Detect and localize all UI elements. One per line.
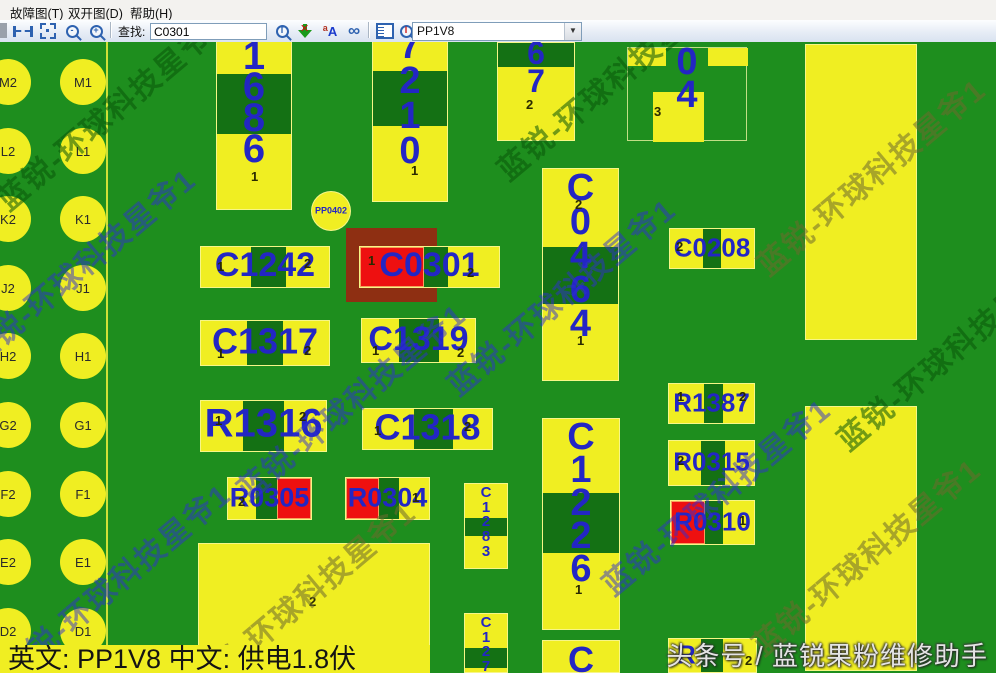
- pin-number: 2: [464, 419, 471, 434]
- pcb-board-canvas[interactable]: M2M1L2L1K2K1J2J1H2H1G2G1F2F1E2E1D2D11686…: [0, 42, 996, 673]
- separator: [110, 22, 112, 38]
- component-R0310[interactable]: R03101: [670, 500, 755, 545]
- fit-screen-button[interactable]: [38, 22, 58, 40]
- component-C0208[interactable]: C02082: [669, 228, 755, 269]
- component-C_partial[interactable]: C: [542, 640, 620, 673]
- component-C1283[interactable]: C1283: [464, 483, 508, 569]
- pin-number: 1: [677, 389, 684, 404]
- bga-pad-H2[interactable]: H2: [0, 333, 31, 379]
- bga-pad-G1[interactable]: G1: [60, 402, 106, 448]
- pin-number: 3: [654, 104, 661, 119]
- zoom-out-button[interactable]: -: [62, 22, 82, 40]
- component-label: C0208: [674, 232, 751, 263]
- pin-number: 1: [575, 582, 582, 597]
- fit-width-icon: [13, 26, 33, 37]
- component-PP0402[interactable]: PP0402: [311, 191, 351, 231]
- pin-number: 1: [215, 413, 222, 428]
- pin-number: 2: [575, 197, 582, 212]
- find-text-button[interactable]: T: [272, 22, 292, 40]
- component-C127[interactable]: C127: [464, 613, 508, 673]
- inspect-net-icon: I: [400, 25, 413, 38]
- pin-number: 2: [304, 343, 311, 358]
- bga-pad-G2[interactable]: G2: [0, 402, 31, 448]
- bga-pad-E1[interactable]: E1: [60, 539, 106, 585]
- component-04[interactable]: 043: [627, 47, 747, 141]
- component-label: C1226: [543, 421, 619, 586]
- component-1686[interactable]: 16861: [216, 42, 292, 210]
- component-C1242[interactable]: C124212: [200, 246, 330, 288]
- net-trace-line: [106, 42, 108, 673]
- pin-number: 2: [309, 594, 316, 609]
- pin-number: 1: [374, 423, 381, 438]
- watermark-credit: 头条号 / 蓝锐果粉维修助手: [666, 636, 988, 673]
- pcb-viewer-window: 故障图(T) 双开图(D) 帮助(H) - + 查找: T ✕ aA ∞ I P…: [0, 0, 996, 673]
- component-label: 04: [658, 46, 716, 112]
- component-R1387[interactable]: R138712: [668, 383, 755, 424]
- bga-pad-F1[interactable]: F1: [60, 471, 106, 517]
- zoom-in-button[interactable]: +: [86, 22, 106, 40]
- bga-pad-F2[interactable]: F2: [0, 471, 31, 517]
- component-R0315[interactable]: R03152: [668, 440, 755, 486]
- component-C1226[interactable]: C12261: [542, 418, 620, 630]
- bga-pad-J2[interactable]: J2: [0, 265, 31, 311]
- pin-number: 1: [411, 163, 418, 178]
- pin-number: 2: [467, 265, 474, 280]
- component-C1319[interactable]: C131912: [361, 318, 476, 363]
- search-input[interactable]: [150, 23, 267, 40]
- bga-pad-L1[interactable]: L1: [60, 128, 106, 174]
- menu-bar: 故障图(T) 双开图(D) 帮助(H): [0, 0, 996, 21]
- bga-pad-M1[interactable]: M1: [60, 59, 106, 105]
- find-text-icon: T: [276, 25, 289, 38]
- pin-number: 2: [457, 345, 464, 360]
- toolbar: - + 查找: T ✕ aA ∞ I PP1V8 ▼: [0, 20, 996, 43]
- component-label: 7210: [373, 42, 447, 169]
- pin-number: 2: [299, 409, 306, 424]
- component-label: C1317: [212, 320, 318, 362]
- component-label: 67: [498, 42, 574, 95]
- component-R0304[interactable]: R03041: [345, 477, 430, 520]
- pin-number: 1: [577, 333, 584, 348]
- component-label: 1686: [217, 42, 291, 165]
- net-select-value: PP1V8: [417, 24, 454, 38]
- bga-pad-K2[interactable]: K2: [0, 196, 31, 242]
- split-view-icon: [376, 23, 394, 39]
- component-C0301[interactable]: C030112: [359, 246, 500, 288]
- pin-number: 2: [238, 494, 245, 509]
- jump-down-button[interactable]: ✕: [295, 22, 315, 40]
- component-strip_bottom[interactable]: [805, 406, 917, 671]
- component-label: C127: [465, 616, 507, 673]
- component-C0464[interactable]: C046421: [542, 168, 619, 381]
- bga-pad-M2[interactable]: M2: [0, 59, 31, 105]
- component-R1316[interactable]: R131612: [200, 400, 327, 452]
- net-select[interactable]: PP1V8 ▼: [412, 22, 582, 41]
- component-C1317[interactable]: C131712: [200, 320, 330, 366]
- pin-number: 1: [217, 259, 224, 274]
- component-label: R0315: [673, 446, 750, 477]
- bga-pad-L2[interactable]: L2: [0, 128, 31, 174]
- component-label: PP0402: [315, 206, 347, 216]
- pin-number: 1: [217, 346, 224, 361]
- pin-number: 1: [739, 513, 746, 528]
- pin-number: 2: [526, 97, 533, 112]
- component-label: C1283: [465, 486, 507, 560]
- watermark-text: 蓝锐-环球科技星爷1: [0, 42, 234, 219]
- zoom-out-icon: -: [66, 25, 79, 38]
- component-7210[interactable]: 72101: [372, 42, 448, 202]
- pin-number: 2: [739, 389, 746, 404]
- pin-number: 1: [368, 253, 375, 268]
- component-strip_top[interactable]: [805, 44, 917, 340]
- pin-number: 1: [251, 169, 258, 184]
- pin-number: 2: [677, 453, 684, 468]
- bga-pad-H1[interactable]: H1: [60, 333, 106, 379]
- bga-pad-E2[interactable]: E2: [0, 539, 31, 585]
- pin-number: 2: [304, 256, 311, 271]
- component-label: C0301: [379, 246, 479, 285]
- chevron-down-icon: ▼: [564, 23, 581, 40]
- separator: [368, 22, 370, 38]
- component-67[interactable]: 672: [497, 42, 575, 141]
- match-case-button[interactable]: aA: [320, 22, 340, 40]
- bga-pad-J1[interactable]: J1: [60, 265, 106, 311]
- search-label: 查找:: [118, 22, 145, 40]
- net-description-bar: 英文: PP1V8 中文: 供电1.8伏: [0, 645, 430, 673]
- component-label: C: [543, 643, 619, 673]
- bga-pad-K1[interactable]: K1: [60, 196, 106, 242]
- pin-number: 1: [412, 490, 419, 505]
- component-C1318[interactable]: C131812: [362, 408, 493, 450]
- jump-down-icon: ✕: [297, 23, 313, 39]
- pin-number: 2: [676, 239, 683, 254]
- fit-width-button[interactable]: [13, 22, 33, 40]
- pin-number: 1: [372, 343, 379, 358]
- zoom-in-icon: +: [90, 25, 103, 38]
- component-R0305[interactable]: R03052: [227, 477, 312, 520]
- loop-icon: ∞: [348, 26, 360, 36]
- split-view-button[interactable]: [375, 22, 395, 40]
- fit-screen-icon: [40, 23, 56, 39]
- watermark-text: 蓝锐-环球科技星爷1: [0, 156, 204, 374]
- component-label: C1319: [368, 319, 468, 358]
- toolbar-clipped-icon: [0, 23, 7, 38]
- loop-button[interactable]: ∞: [344, 22, 364, 40]
- component-label: C1242: [215, 246, 315, 285]
